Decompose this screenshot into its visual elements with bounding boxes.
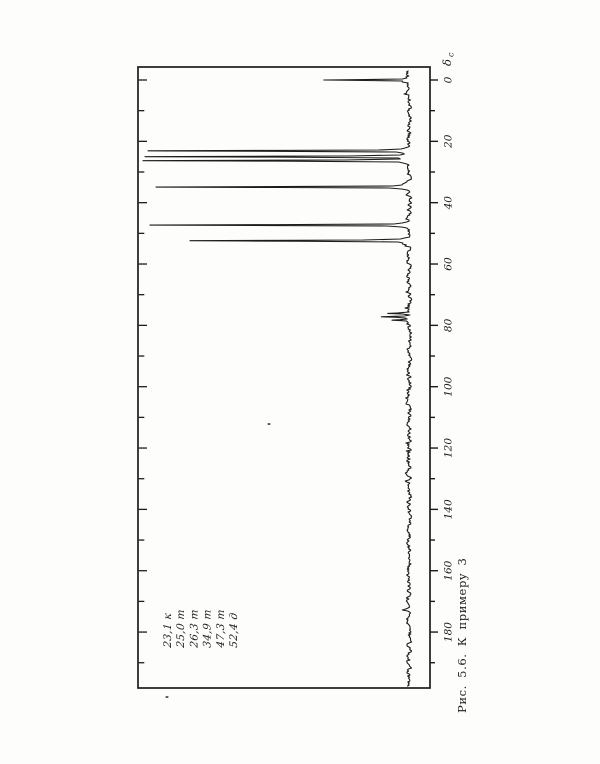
axis-tick-label: 140	[443, 499, 455, 519]
legend-peak-label: 52,4 д	[228, 612, 240, 648]
left-axis-ticks	[139, 80, 147, 663]
legend-peak-label: 25,0 т	[175, 609, 187, 650]
axis-tick-label: 120	[443, 438, 455, 458]
axis-tick-label: 60	[443, 257, 455, 271]
axis-tick-label: 80	[443, 318, 455, 332]
legend-peak-label: 23,1 к	[162, 612, 174, 649]
peak-list-legend: 23,1 к25,0 т26,3 т34,9 т47,3 т52,4 д	[162, 609, 240, 650]
spectrum-trace	[143, 71, 412, 686]
axis-title-delta: δ	[440, 59, 454, 66]
legend-peak-label: 34,9 т	[202, 609, 214, 649]
chemical-shift-axis: 020406080100120140160180	[430, 76, 455, 662]
axis-tick-label: 20	[443, 134, 455, 149]
axis-tick-label: 180	[443, 622, 455, 642]
dust-speck	[267, 423, 270, 425]
axis-tick-label: 0	[443, 76, 455, 83]
legend-peak-label: 26,3 т	[188, 609, 200, 650]
axis-tick-label: 160	[443, 560, 455, 580]
dust-speck	[165, 696, 168, 698]
axis-tick-label: 40	[443, 196, 455, 211]
axis-title-subscript: с	[447, 52, 456, 57]
scan-artifacts	[165, 423, 270, 698]
axis-tick-label: 100	[443, 376, 455, 396]
figure-caption: Рис. 5.6. К примеру 3	[455, 558, 469, 713]
nmr-spectrum-figure: 020406080100120140160180 δ с 23,1 к25,0 …	[0, 0, 600, 764]
scanned-book-page: 020406080100120140160180 δ с 23,1 к25,0 …	[0, 0, 600, 764]
legend-peak-label: 47,3 т	[215, 609, 227, 650]
